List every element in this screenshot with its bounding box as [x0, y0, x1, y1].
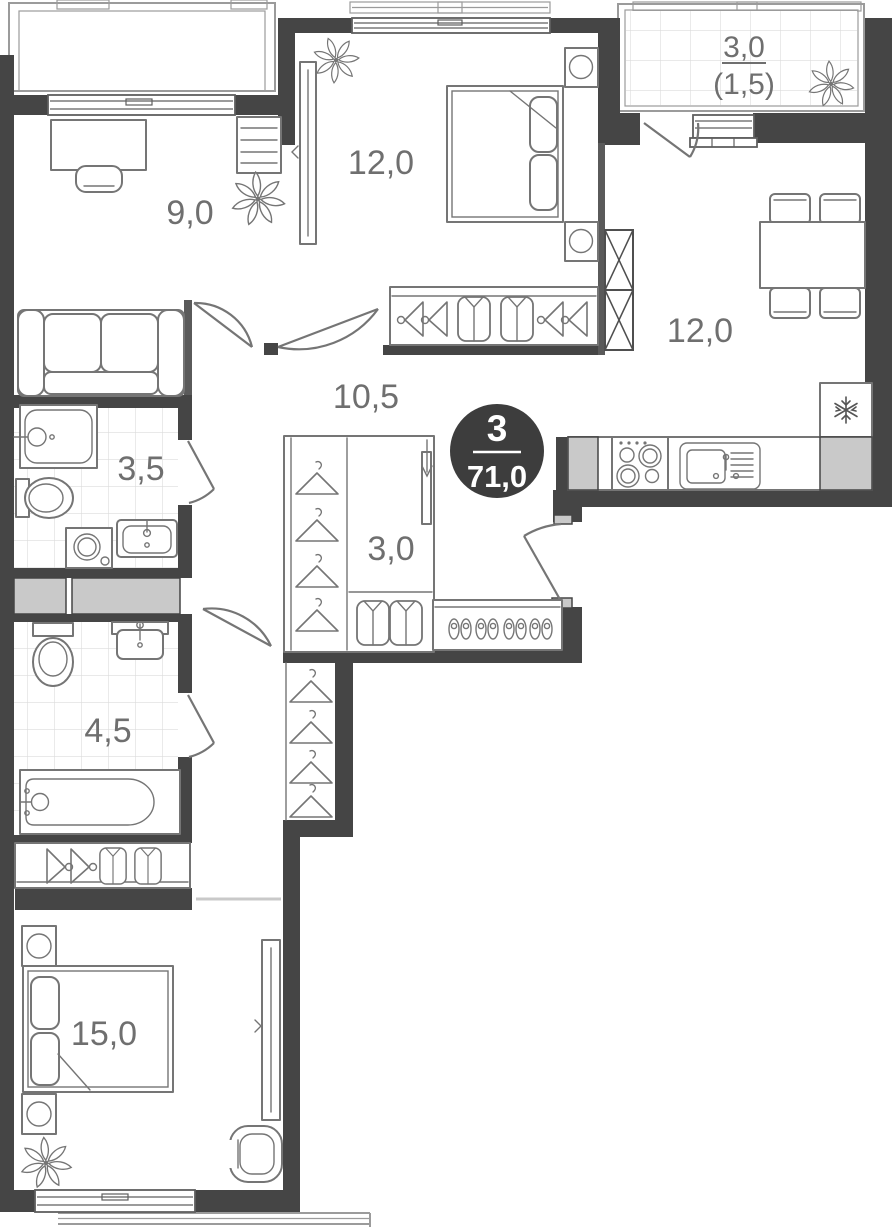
nightstand-icon [565, 222, 598, 261]
room-cabinet [18, 117, 285, 396]
coat-closet [286, 663, 332, 820]
unit-info-badge: 3 71,0 [450, 404, 544, 498]
sink-icon [112, 622, 168, 659]
nightstand-icon [22, 926, 56, 966]
window-bedroom-top [352, 18, 550, 33]
badge-rooms-count: 3 [487, 408, 508, 449]
door-bathroom-large [188, 695, 214, 757]
ventilation-shaft-kitchen [605, 230, 633, 350]
sink-icon [117, 520, 177, 557]
kitchen-counter [568, 437, 872, 490]
sliding-door-icon [422, 440, 432, 524]
room-label-bathroom-large: 4,5 [84, 712, 131, 750]
storage-closet [15, 843, 190, 888]
bed-icon [447, 86, 563, 222]
room-label-kitchen-living: 12,0 [667, 312, 733, 350]
toilet-icon [33, 623, 73, 686]
badge-total-area: 71,0 [467, 459, 527, 494]
room-bedroom-top [292, 32, 598, 345]
railing-above-bedroom [350, 2, 550, 13]
toilet-icon [16, 478, 73, 518]
radiator-icon [237, 117, 281, 173]
plant-icon [231, 172, 285, 226]
door-cabinet [194, 303, 252, 347]
door-bathroom-small [188, 441, 214, 503]
door-bedroom-top [278, 309, 378, 349]
ledge-bottom [58, 1213, 370, 1227]
balcony-railing-top-left [9, 0, 275, 91]
office-chair-icon [76, 166, 122, 192]
window-bedroom-main [35, 1190, 195, 1212]
room-label-bedroom-main: 15,0 [71, 1015, 137, 1053]
window-cabinet [48, 95, 235, 115]
bathtub-icon [20, 770, 180, 834]
loggia-area-label: 3,0 [723, 31, 765, 64]
stove-icon [612, 437, 668, 490]
shoe-rack-icon [433, 600, 562, 650]
room-label-hallway: 10,5 [333, 378, 399, 416]
nightstand-icon [22, 1094, 56, 1134]
nightstand-icon [565, 48, 598, 87]
room-label-cabinet: 9,0 [166, 194, 213, 232]
door-bedroom-main [203, 608, 271, 646]
tv-icon [255, 940, 280, 1120]
room-label-bathroom-small: 3,5 [117, 450, 164, 488]
floor-plan-drawing: 9,0 12,0 3,0 (1,5) 12,0 10,5 3,5 3,0 4,5… [0, 0, 892, 1227]
desk-icon [51, 120, 146, 170]
dining-table-icon [760, 194, 865, 318]
loggia-reduced-area-label: (1,5) [713, 68, 775, 101]
armchair-icon [226, 1126, 282, 1182]
wardrobe-rail-icon [390, 287, 598, 345]
shower-tray-icon [14, 405, 97, 468]
sofa-icon [18, 310, 184, 396]
window-kitchen [690, 115, 757, 147]
tv-icon [292, 62, 316, 244]
plant-icon [21, 1137, 72, 1188]
ventilation-shaft-bathroom [14, 578, 180, 614]
room-label-bedroom-top: 12,0 [348, 144, 414, 182]
washing-machine-icon [66, 528, 112, 568]
room-label-wardrobe: 3,0 [367, 530, 414, 568]
room-bedroom-main [21, 926, 282, 1188]
fridge-icon [820, 383, 872, 437]
entrance-door [524, 515, 572, 608]
floor-plan: 9,0 12,0 3,0 (1,5) 12,0 10,5 3,5 3,0 4,5… [0, 0, 892, 1227]
